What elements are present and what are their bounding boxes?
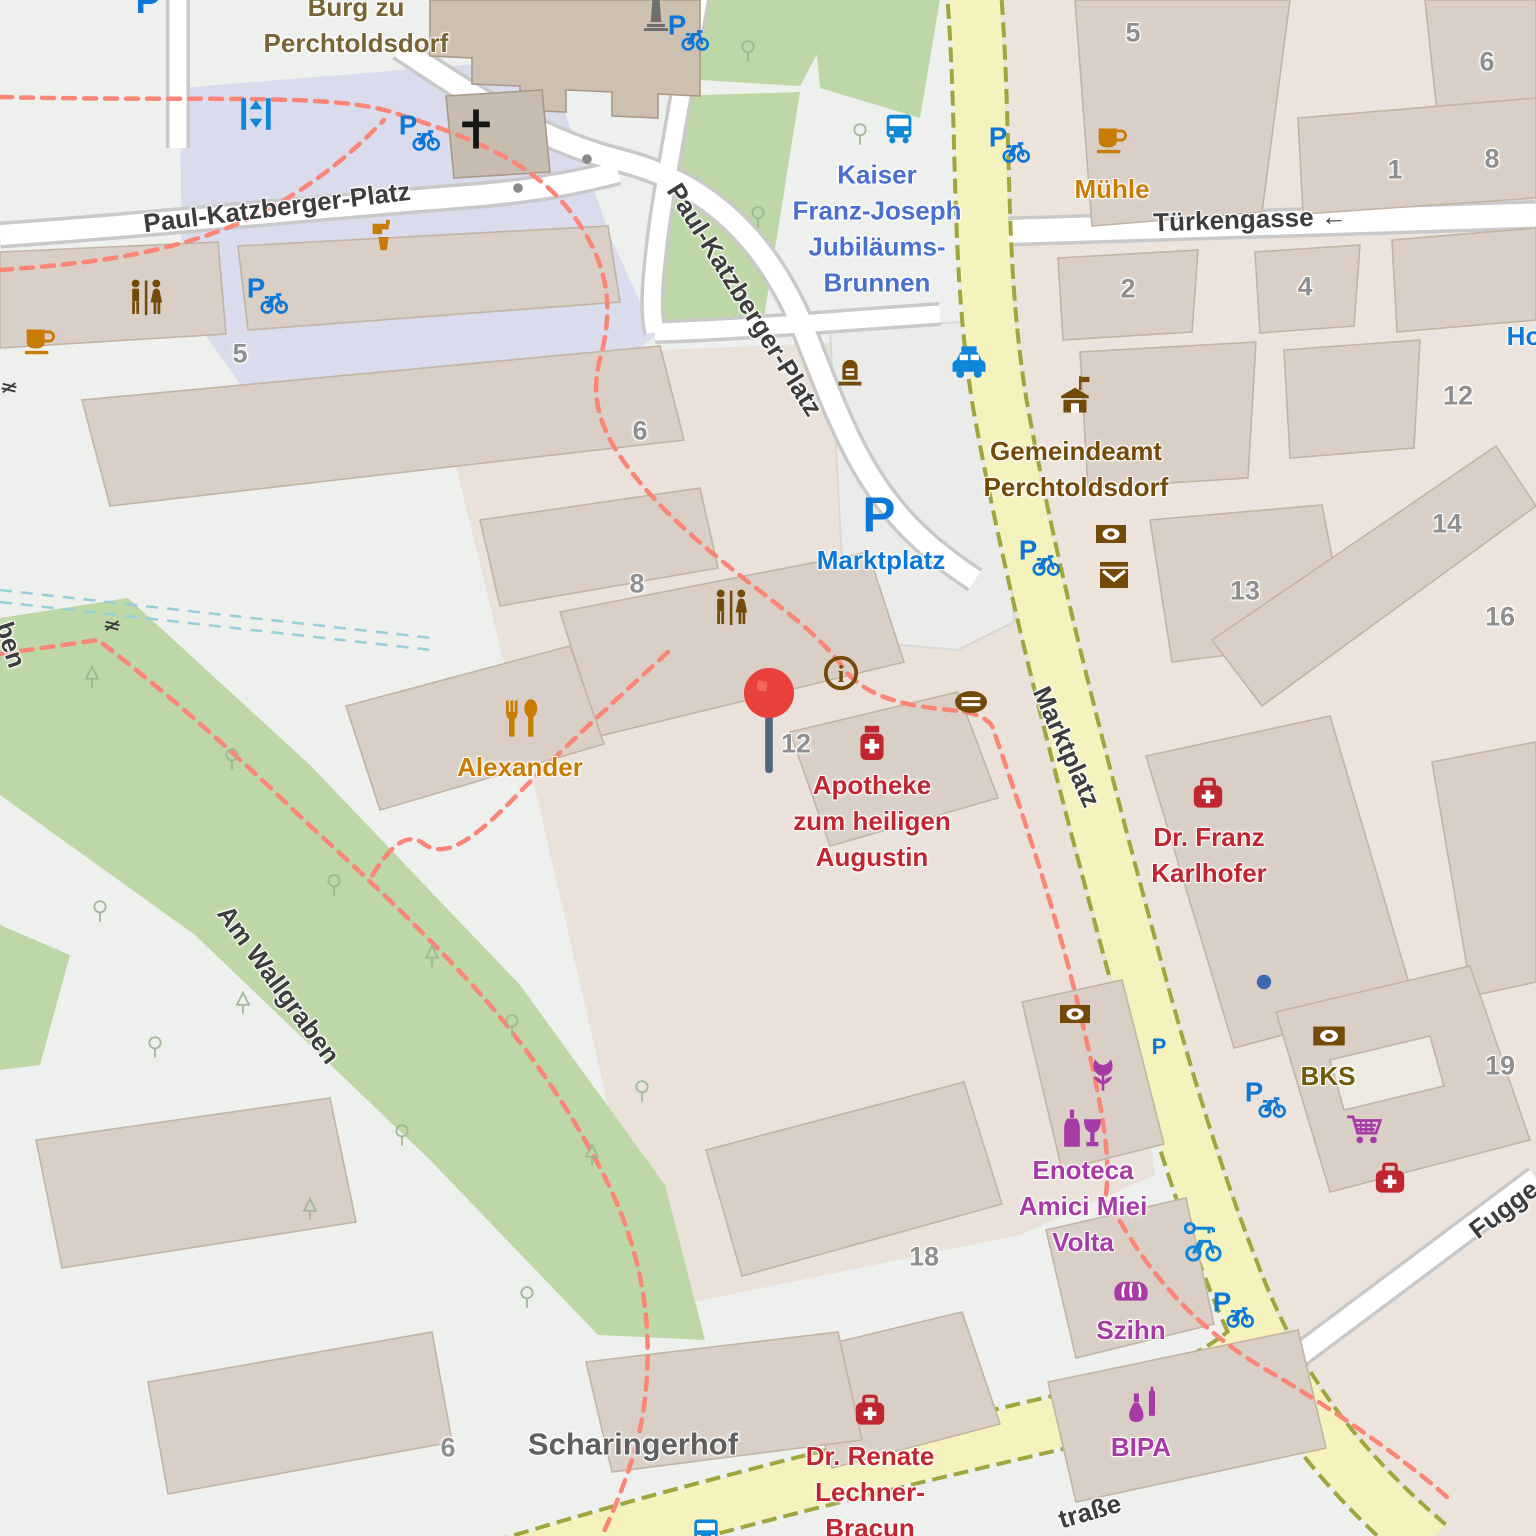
parking-icon: P	[126, 0, 170, 22]
kaiser-franz-joseph-jubilaeums-brunnen-label: Kaiser Franz-Joseph Jubiläums- Brunnen	[792, 157, 961, 301]
deciduous-tree-icon	[733, 37, 763, 67]
alexander-label: Alexander	[457, 750, 583, 786]
bus-stop-icon	[688, 1515, 724, 1536]
szihn-label: Szihn	[1096, 1313, 1165, 1349]
information-icon: i	[820, 652, 862, 694]
dr-franz-karlhofer-label: Dr. Franz Karlhofer	[1151, 820, 1267, 892]
wine-shop-icon	[1057, 1106, 1105, 1154]
pharmacy-icon	[850, 722, 894, 766]
tuerkengasse-label: Türkengasse ←	[1153, 199, 1348, 242]
taxi-icon	[947, 342, 991, 386]
house-number-label: 6	[632, 412, 647, 449]
house-number-label: 8	[1484, 140, 1499, 177]
atm-icon	[1055, 994, 1095, 1034]
marktplatz-parking-label: Marktplatz	[817, 543, 946, 579]
bicycle-parking-icon: P	[1016, 534, 1060, 578]
fuggergasse-partial-label: Fugge	[1462, 1172, 1536, 1248]
conifer-tree-icon	[295, 1195, 325, 1225]
deciduous-tree-icon	[85, 897, 115, 927]
house-number-label: 5	[1125, 14, 1140, 51]
townhall-icon	[1052, 374, 1098, 420]
cafe-icon	[1093, 120, 1131, 158]
house-number-label: 6	[1479, 43, 1494, 80]
deciduous-tree-icon	[627, 1077, 657, 1107]
supermarket-cart-icon	[1343, 1110, 1385, 1152]
house-number-label: 14	[1432, 505, 1462, 542]
bicycle-rental-icon	[1179, 1219, 1225, 1265]
enoteca-amici-miei-volta-label: Enoteca Amici Miei Volta	[1019, 1153, 1148, 1261]
bakery-icon	[1108, 1264, 1154, 1310]
path-node-icon	[510, 180, 526, 196]
parking-icon: P	[1146, 1033, 1172, 1059]
doctor-icon	[1187, 774, 1229, 816]
toilets-icon	[123, 276, 169, 322]
bicycle-parking-icon: P	[1210, 1286, 1254, 1330]
scharingerhof-label: Scharingerhof	[528, 1424, 738, 1467]
location-pin[interactable]	[739, 667, 799, 777]
post-icon	[1094, 555, 1134, 595]
atm-icon	[1091, 514, 1131, 554]
deciduous-tree-icon	[217, 745, 247, 775]
dr-renate-lechner-bracun-label: Dr. Renate Lechner- Bracun	[806, 1439, 935, 1536]
conifer-tree-icon	[77, 663, 107, 693]
house-number-label: 2	[1120, 270, 1135, 307]
house-number-label: 16	[1485, 598, 1515, 635]
deciduous-tree-icon	[743, 203, 773, 233]
burg-zu-perchtoldsdorf-label: Burg zu Perchtoldsdorf	[264, 0, 449, 62]
deciduous-tree-icon	[387, 1121, 417, 1151]
doctor-icon	[1369, 1159, 1411, 1201]
gemeindeamt-perchtoldsdorf-label: Gemeindeamt Perchtoldsdorf	[984, 434, 1169, 506]
restaurant-icon	[498, 697, 544, 743]
doctor-icon	[849, 1391, 891, 1433]
house-number-label: 12	[1443, 377, 1473, 414]
svg-text:P: P	[247, 272, 265, 303]
florist-icon	[1082, 1054, 1124, 1096]
house-number-label: 8	[629, 565, 644, 602]
house-number-label: 6	[440, 1429, 455, 1466]
svg-text:i: i	[838, 661, 845, 688]
cosmetics-icon	[1122, 1384, 1166, 1428]
deciduous-tree-icon	[497, 1011, 527, 1041]
apotheke-zum-heiligen-augustin-label: Apotheke zum heiligen Augustin	[793, 768, 950, 876]
cafe-icon	[21, 321, 59, 359]
muehle-label: Mühle	[1074, 172, 1149, 208]
conifer-tree-icon	[417, 942, 447, 972]
bus-stop-icon	[880, 110, 918, 148]
deciduous-tree-icon	[512, 1283, 542, 1313]
bipa-label: BIPA	[1111, 1430, 1171, 1466]
poi-dot-icon	[1255, 973, 1273, 991]
deciduous-tree-icon	[319, 871, 349, 901]
marktplatz-street-label: Marktplatz	[1023, 681, 1108, 813]
bicycle-parking-icon: P	[244, 272, 288, 316]
parking-icon: P	[850, 485, 908, 543]
atm-icon	[1308, 1015, 1350, 1057]
svg-text:P: P	[399, 109, 417, 140]
memorial-icon	[831, 357, 869, 395]
am-wallgraben-label: Am Wallgraben	[208, 898, 348, 1071]
bicycle-parking-icon: P	[396, 109, 440, 153]
svg-text:P: P	[863, 487, 896, 542]
house-number-label: 4	[1297, 268, 1312, 305]
fountain-icon	[949, 680, 993, 724]
strasse-partial-label: traße	[1054, 1486, 1125, 1536]
church-cross-icon	[453, 106, 499, 152]
deciduous-tree-icon	[140, 1033, 170, 1063]
house-number-label: 19	[1485, 1047, 1515, 1084]
house-number-label: 13	[1230, 572, 1260, 609]
bks-label: BKS	[1301, 1059, 1356, 1095]
svg-text:P: P	[1245, 1076, 1263, 1107]
toilets-icon	[708, 586, 754, 632]
bicycle-parking-icon: P	[1242, 1076, 1286, 1120]
svg-text:P: P	[1213, 1286, 1231, 1317]
monument-icon	[636, 0, 676, 36]
elevator-icon	[235, 93, 277, 135]
hotel-partial-label: Ho	[1507, 319, 1536, 355]
drinking-water-icon	[366, 218, 404, 256]
conifer-tree-icon	[577, 1141, 607, 1171]
street-partial-left-label: ben	[0, 617, 34, 672]
gate-icon: ≠	[0, 370, 27, 406]
conifer-tree-icon	[228, 989, 258, 1019]
map-overlay: Burg zu PerchtoldsdorfKaiser Franz-Josep…	[0, 0, 1536, 1536]
house-number-label: 18	[909, 1238, 939, 1275]
svg-text:≠: ≠	[0, 373, 21, 403]
path-node-icon	[579, 151, 595, 167]
house-number-label: 5	[232, 335, 247, 372]
svg-text:P: P	[989, 121, 1007, 152]
house-number-label: 1	[1387, 151, 1402, 188]
svg-text:≠: ≠	[100, 611, 125, 641]
deciduous-tree-icon	[845, 120, 875, 150]
bicycle-parking-icon: P	[986, 121, 1030, 165]
map-canvas[interactable]: Burg zu PerchtoldsdorfKaiser Franz-Josep…	[0, 0, 1536, 1536]
svg-text:P: P	[1019, 534, 1037, 565]
svg-text:P: P	[136, 0, 161, 21]
gate-icon: ≠	[94, 608, 130, 644]
svg-text:P: P	[1152, 1034, 1167, 1059]
